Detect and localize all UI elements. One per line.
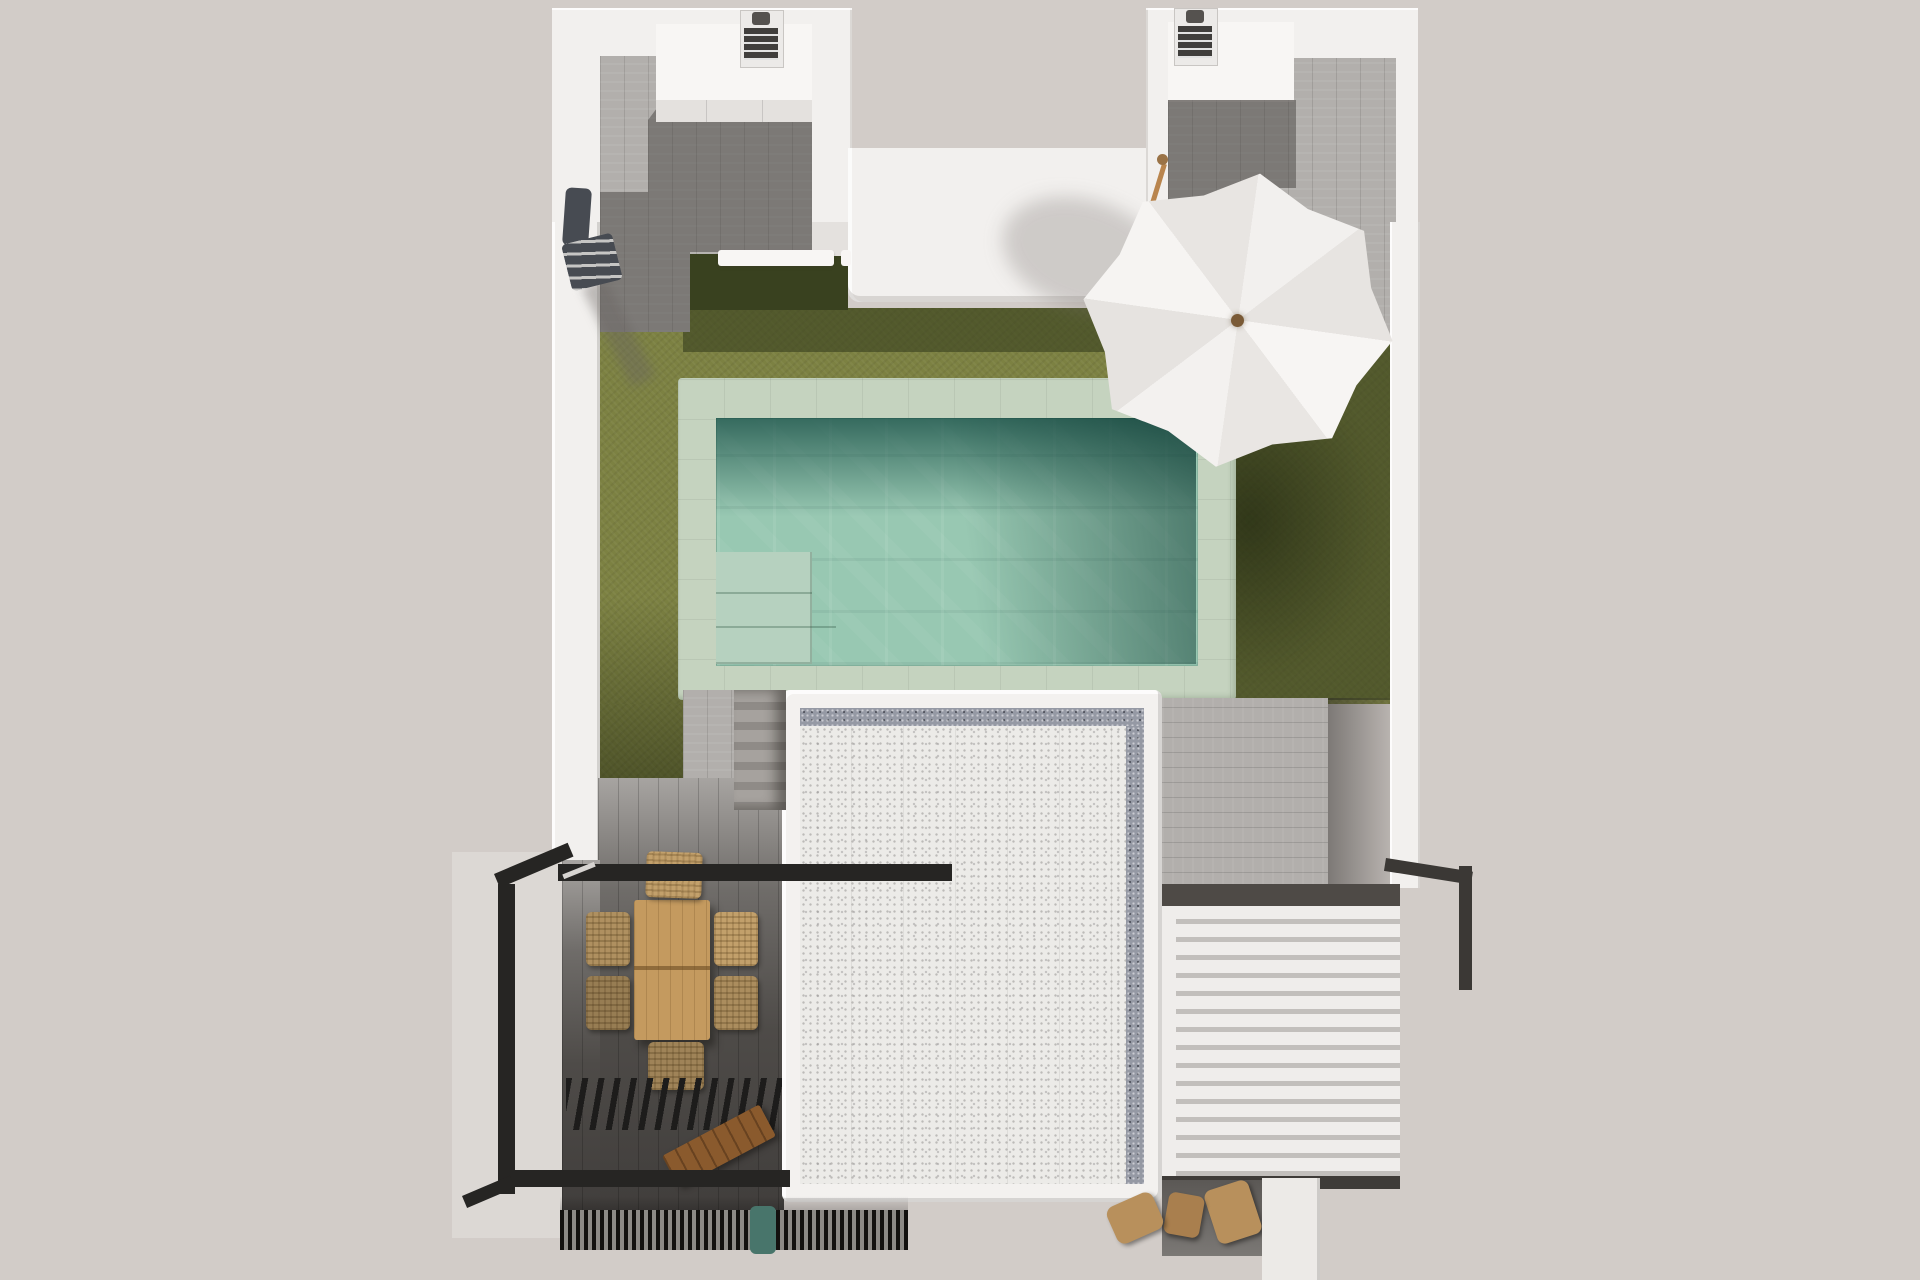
- dining-chair-left-2: [586, 976, 630, 1030]
- white-walkway: [1262, 1178, 1320, 1280]
- right-boundary-wall: [1390, 222, 1420, 888]
- side-path-shadow: [1328, 698, 1390, 888]
- left-wing-cabinet-face: [656, 100, 812, 122]
- roof-gravel-field: [800, 726, 1126, 1184]
- parasol-pole-tip: [1157, 154, 1168, 165]
- utility-unit-right-body: [1178, 26, 1212, 58]
- dining-table-split: [634, 966, 710, 970]
- utility-unit-left-body: [744, 28, 778, 60]
- dining-chair-right-2: [714, 976, 758, 1030]
- pergola-frame-top-rail: [558, 864, 952, 881]
- pergola-railing-side: [1459, 866, 1472, 990]
- pergola-frame-left-post: [498, 884, 515, 1194]
- roof-border-right: [1126, 726, 1144, 1184]
- parapet-band-right: [841, 250, 851, 266]
- grate-teal-unit: [750, 1206, 776, 1254]
- dining-chair-left-1: [586, 912, 630, 966]
- utility-unit-right-cap: [1186, 10, 1204, 23]
- render-canvas: [0, 0, 1920, 1280]
- utility-unit-left-cap: [752, 12, 770, 25]
- ventilation-grate: [560, 1210, 908, 1250]
- side-path: [1162, 698, 1328, 888]
- grate-shadow: [560, 1196, 908, 1210]
- dining-table: [634, 900, 710, 1040]
- pergola-left-post: [1162, 906, 1176, 1178]
- lawn-shadow-left: [600, 596, 683, 784]
- louvered-pergola: [1176, 906, 1400, 1178]
- pool-step-line-1: [716, 592, 812, 594]
- pool-steps: [716, 552, 812, 664]
- pergola-frame-bottom-rail: [498, 1170, 790, 1187]
- left-wing-cabinet: [656, 24, 812, 100]
- left-wing-cabinet-seam-2: [762, 100, 763, 122]
- dining-chair-right-1: [714, 912, 758, 966]
- pergola-beam: [1162, 884, 1400, 906]
- pool-step-line-2: [716, 626, 836, 628]
- parapet-band-left: [718, 250, 834, 266]
- left-boundary-wall: [552, 222, 600, 866]
- left-wing-cabinet-seam-1: [706, 100, 707, 122]
- roof-border-top: [800, 708, 1144, 726]
- wooden-stool-2: [1163, 1191, 1206, 1239]
- parasol-center-knob: [1231, 314, 1244, 327]
- stone-stair: [734, 690, 786, 810]
